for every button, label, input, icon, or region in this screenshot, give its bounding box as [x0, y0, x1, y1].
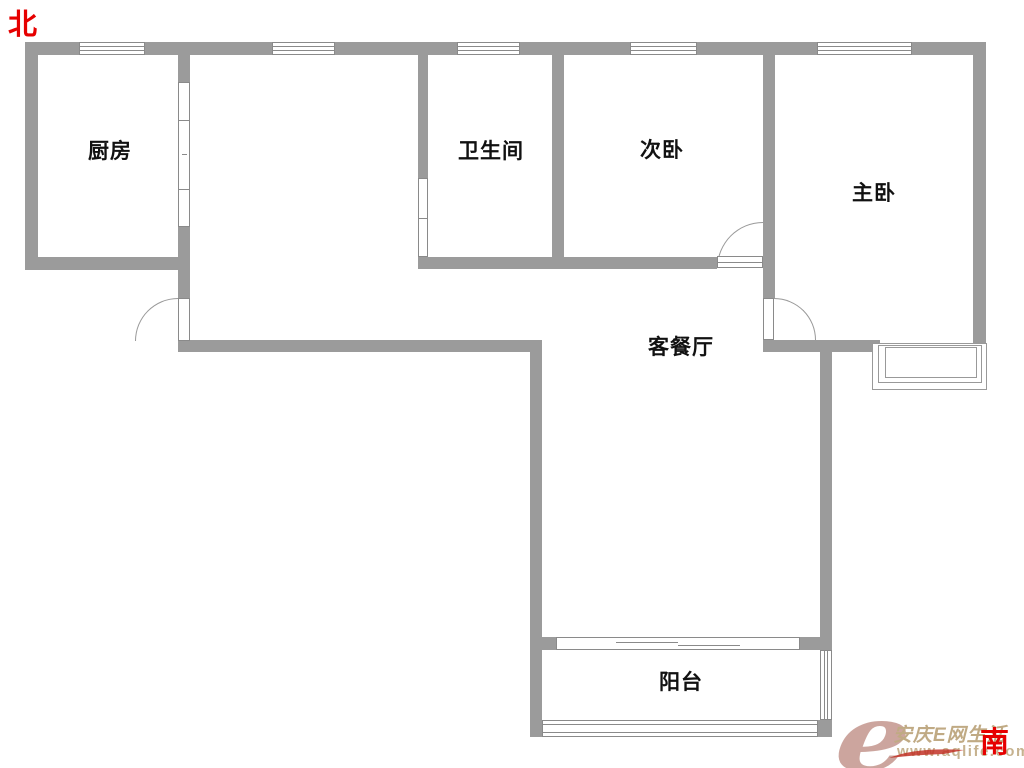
bathroom-label: 卫生间	[458, 135, 524, 165]
wall-living-right	[820, 352, 832, 650]
entrance-door-arc	[135, 298, 178, 341]
north-label: 北	[8, 10, 37, 39]
watermark-logo: e	[832, 702, 915, 768]
wall-living-left	[530, 352, 542, 737]
master-bedroom-label: 主卧	[852, 177, 896, 207]
bathroom-window	[457, 42, 520, 55]
wall-entry-bottom	[178, 340, 542, 352]
floor-plan: 厨房 卫生间 次卧 主卧 客餐厅 阳台 北 南 e 安庆E网生活 www.aql…	[0, 0, 1024, 768]
balcony-right-window	[820, 650, 832, 720]
south-label: 南	[980, 728, 1009, 757]
second-bedroom-door	[717, 256, 763, 268]
bay-window-inner	[885, 347, 977, 378]
wall-left	[25, 42, 38, 270]
master-bedroom-door	[763, 298, 774, 340]
sliding-panel-line	[678, 645, 740, 646]
wall-kitchen-bottom	[25, 257, 190, 270]
master-bedroom-door-arc	[774, 298, 816, 340]
wall-balcony-right-corner	[818, 720, 832, 737]
watermark-swoosh-icon	[888, 746, 966, 760]
kitchen-door-divider	[179, 120, 189, 121]
balcony-bottom-window	[542, 720, 818, 737]
wall-balcony-door-left-post	[542, 637, 556, 650]
second-bedroom-window	[630, 42, 697, 55]
bathroom-sliding-door	[418, 178, 428, 257]
master-bedroom-window	[817, 42, 912, 55]
wall-kitchen-right-lower	[178, 227, 190, 298]
kitchen-sliding-door	[178, 82, 190, 227]
living-dining-label: 客餐厅	[648, 331, 714, 361]
second-bedroom-label: 次卧	[640, 134, 684, 164]
kitchen-label: 厨房	[88, 135, 132, 165]
balcony-sliding-door	[556, 637, 800, 650]
wall-bathroom-right	[552, 42, 564, 258]
bathroom-door-divider	[419, 218, 427, 219]
hallway-window	[272, 42, 335, 55]
wall-right	[973, 42, 986, 345]
wall-master-bottom	[763, 340, 880, 352]
wall-bathroom-left	[418, 42, 428, 178]
entrance-door	[178, 298, 190, 341]
kitchen-door-divider	[179, 189, 189, 190]
balcony-label: 阳台	[659, 666, 703, 696]
sliding-panel-line	[616, 642, 678, 643]
kitchen-door-divider	[182, 154, 187, 155]
wall-bedroom-divider	[763, 42, 775, 298]
wall-balcony-door-right-post	[800, 637, 832, 650]
kitchen-window	[79, 42, 145, 55]
wall-kitchen-right-upper	[178, 42, 190, 82]
wall-bathroom-bedroom-bottom	[418, 257, 717, 269]
